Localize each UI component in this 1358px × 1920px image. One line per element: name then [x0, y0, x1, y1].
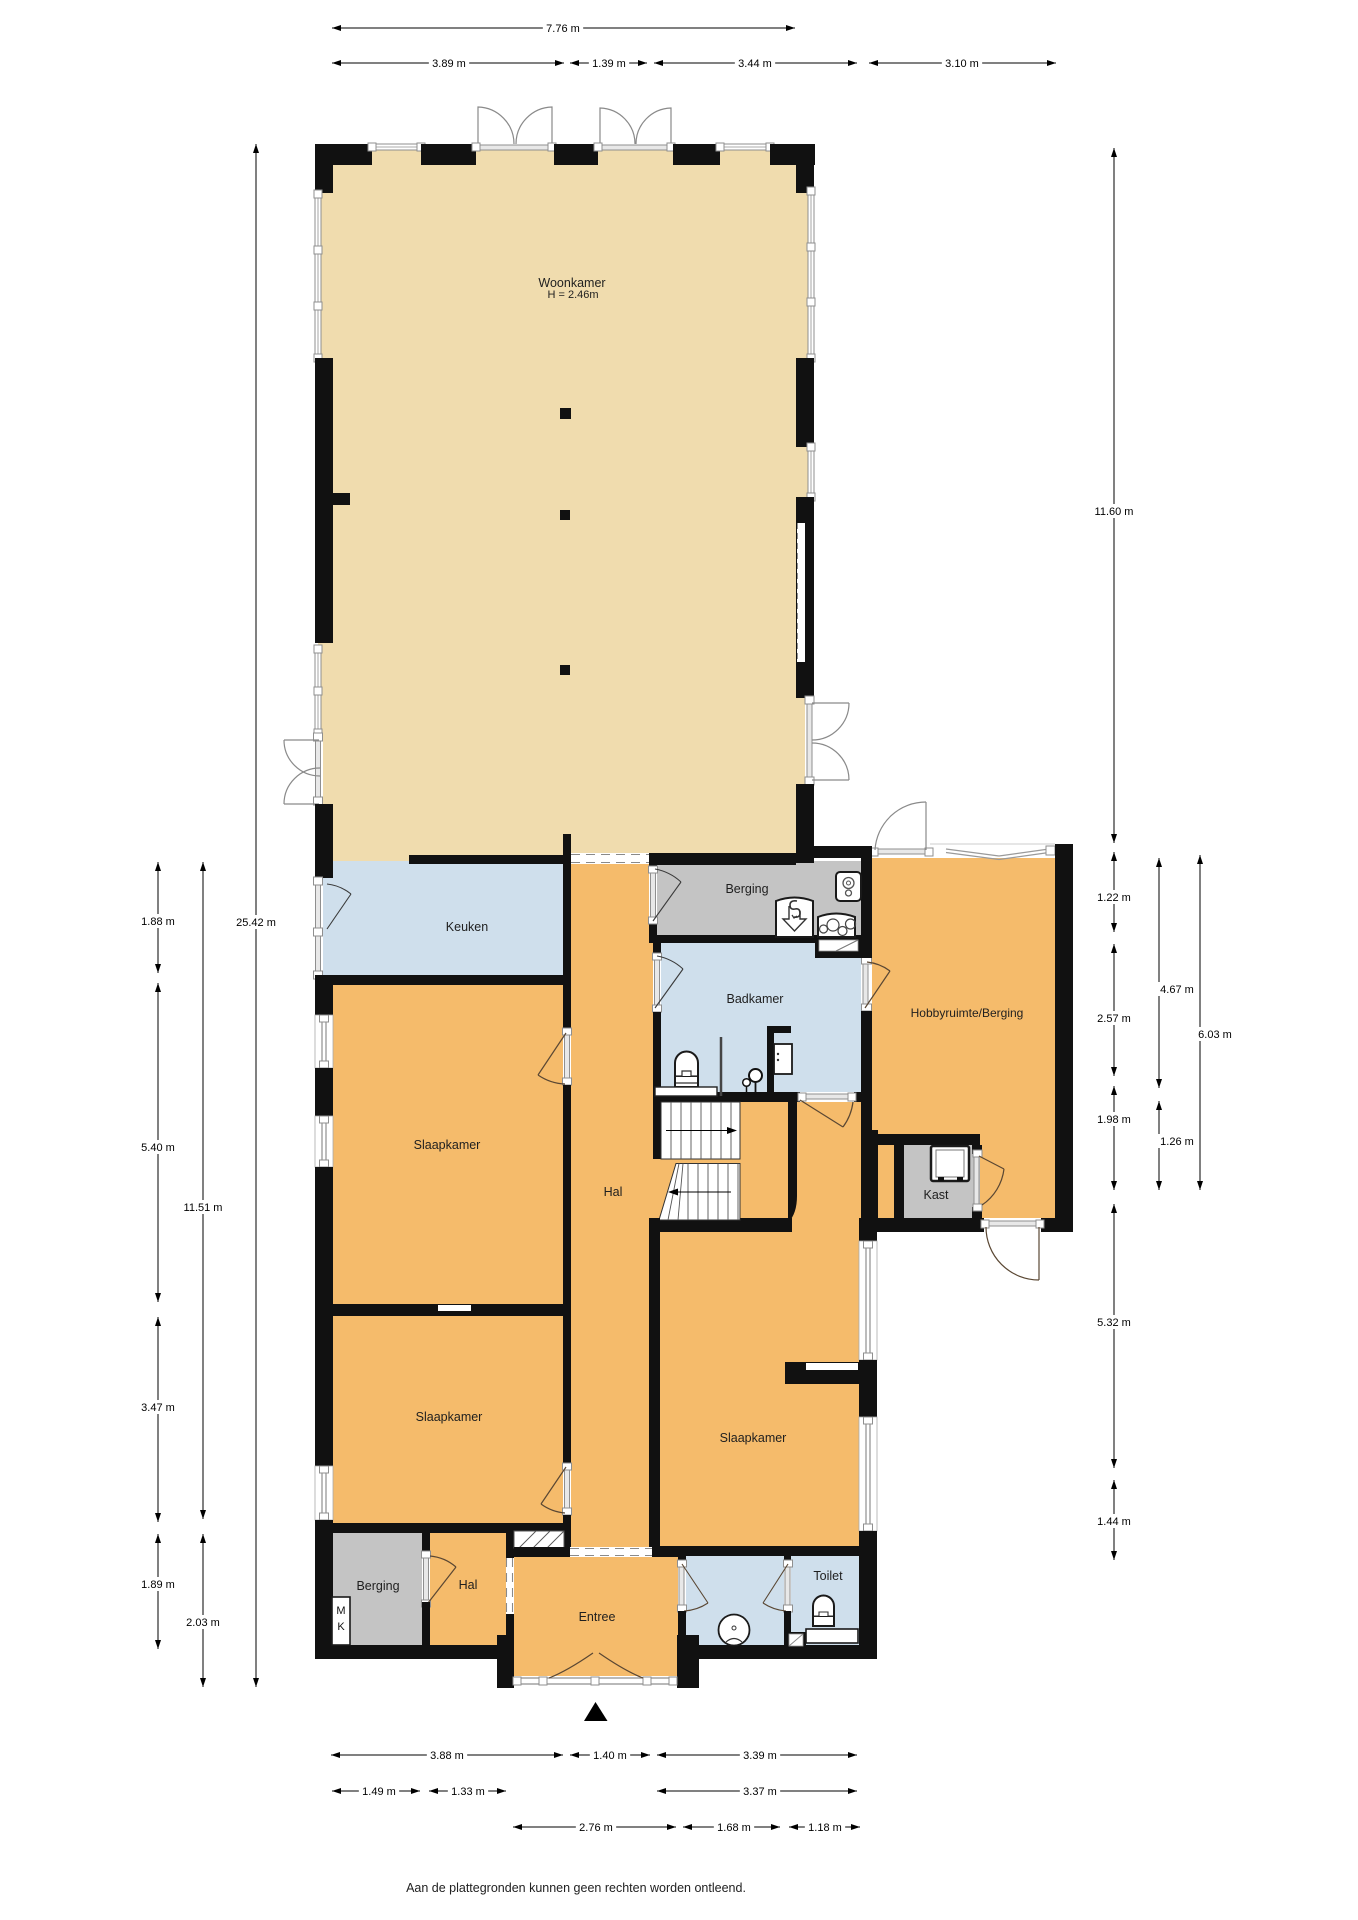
svg-text:1.39 m: 1.39 m	[592, 58, 626, 70]
svg-text:1.26 m: 1.26 m	[1160, 1136, 1194, 1148]
svg-text:11.51 m: 11.51 m	[184, 1202, 223, 1214]
svg-text:Hal: Hal	[604, 1185, 623, 1199]
svg-text:3.39 m: 3.39 m	[743, 1750, 777, 1762]
svg-text:1.49 m: 1.49 m	[362, 1786, 396, 1798]
svg-text:5.40 m: 5.40 m	[141, 1142, 175, 1154]
svg-text:Slaapkamer: Slaapkamer	[720, 1431, 787, 1445]
svg-text:Toilet: Toilet	[813, 1569, 843, 1583]
svg-text:Berging: Berging	[356, 1579, 399, 1593]
svg-text:Slaapkamer: Slaapkamer	[416, 1410, 483, 1424]
svg-text:1.68 m: 1.68 m	[717, 1822, 751, 1834]
svg-text:1.18 m: 1.18 m	[808, 1822, 842, 1834]
svg-text:2.76 m: 2.76 m	[579, 1822, 613, 1834]
svg-text:7.76 m: 7.76 m	[546, 23, 580, 35]
svg-text:5.32 m: 5.32 m	[1097, 1317, 1131, 1329]
svg-text:Entree: Entree	[579, 1610, 616, 1624]
svg-text:3.47 m: 3.47 m	[141, 1402, 175, 1414]
svg-text:1.33 m: 1.33 m	[451, 1786, 485, 1798]
svg-text:1.40 m: 1.40 m	[593, 1750, 627, 1762]
svg-text:Keuken: Keuken	[446, 920, 488, 934]
svg-text:1.98 m: 1.98 m	[1097, 1114, 1131, 1126]
svg-text:Hobbyruimte/Berging: Hobbyruimte/Berging	[911, 1006, 1024, 1020]
svg-text:Slaapkamer: Slaapkamer	[414, 1138, 481, 1152]
svg-text:1.22 m: 1.22 m	[1097, 892, 1131, 904]
svg-text:1.88 m: 1.88 m	[141, 916, 175, 928]
svg-text:Hal: Hal	[459, 1578, 478, 1592]
svg-text:11.60 m: 11.60 m	[1095, 506, 1134, 518]
svg-text:25.42 m: 25.42 m	[236, 917, 276, 929]
svg-text:2.03 m: 2.03 m	[186, 1617, 220, 1629]
svg-text:H = 2.46m: H = 2.46m	[547, 289, 598, 301]
svg-text:3.89 m: 3.89 m	[432, 58, 466, 70]
svg-text:Woonkamer: Woonkamer	[538, 276, 605, 290]
svg-text:Badkamer: Badkamer	[727, 992, 784, 1006]
svg-text:Kast: Kast	[923, 1188, 949, 1202]
svg-text:3.37 m: 3.37 m	[743, 1786, 777, 1798]
svg-text:3.88 m: 3.88 m	[430, 1750, 464, 1762]
svg-text:2.57 m: 2.57 m	[1097, 1013, 1131, 1025]
svg-text:3.44 m: 3.44 m	[738, 58, 772, 70]
svg-text:Berging: Berging	[725, 882, 768, 896]
svg-text:M: M	[336, 1605, 345, 1617]
svg-text:K: K	[337, 1621, 345, 1633]
svg-text:4.67 m: 4.67 m	[1160, 984, 1194, 996]
svg-text:Aan de plattegronden kunnen ge: Aan de plattegronden kunnen geen rechten…	[406, 1881, 746, 1895]
svg-text:1.44 m: 1.44 m	[1097, 1516, 1131, 1528]
svg-text:3.10 m: 3.10 m	[945, 58, 979, 70]
svg-text:1.89 m: 1.89 m	[141, 1579, 175, 1591]
svg-text:6.03 m: 6.03 m	[1198, 1029, 1232, 1041]
